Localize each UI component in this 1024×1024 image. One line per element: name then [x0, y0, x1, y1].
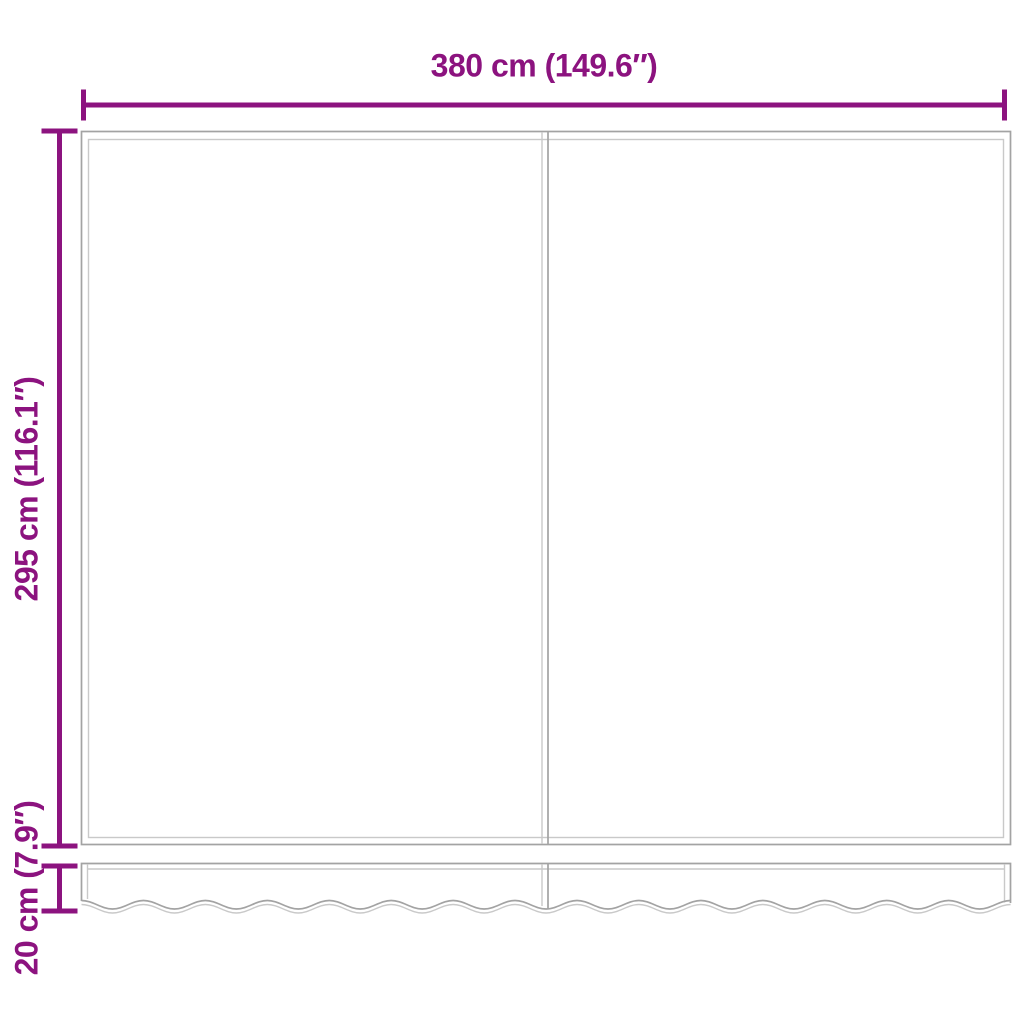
awning-fabric-dimension-diagram: 380 cm (149.6″) 295 cm (116.1″) 20 cm (7… — [0, 0, 1024, 1024]
valance-height-dimension — [42, 866, 78, 911]
fabric-panel-outline — [82, 132, 1011, 845]
fabric-panel-inner-seam — [89, 140, 1004, 838]
height-dimension — [42, 131, 78, 846]
valance-wavy-edge — [82, 901, 1011, 910]
height-dimension-label: 295 cm (116.1″) — [9, 377, 46, 602]
valance-height-dimension-label: 20 cm (7.9″) — [9, 801, 46, 976]
width-dimension — [84, 90, 1005, 121]
width-dimension-label: 380 cm (149.6″) — [431, 48, 658, 85]
awning-fabric-drawing — [0, 0, 1024, 1024]
